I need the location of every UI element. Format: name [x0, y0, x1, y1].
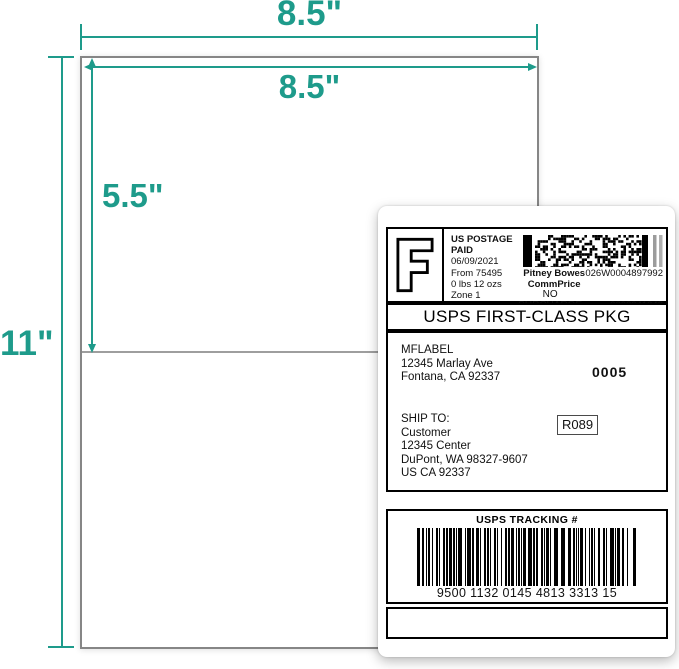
letter-f-outline-icon	[396, 237, 434, 293]
postage-zone: Zone 1	[451, 290, 521, 301]
product-diagram: 8.5" 11" 8.5" 5.5" US POSTAGE PAID 06/09…	[0, 0, 679, 669]
tracking-barcode	[417, 528, 638, 586]
sheet-width-dimension-label: 8.5"	[81, 0, 538, 31]
recipient-name: Customer	[401, 427, 528, 441]
sheet-height-tick-top	[48, 56, 74, 58]
sheet-width-dimension-line	[81, 36, 538, 38]
label-width-dimension-label: 8.5"	[81, 70, 538, 103]
sender-street: 12345 Marlay Ave	[401, 358, 500, 372]
recipient-city: DuPont, WA 98327-9607	[401, 454, 528, 468]
ship-to-heading: SHIP TO:	[401, 413, 528, 427]
sheet-width-tick-right	[536, 24, 538, 50]
label-height-arrow-up-icon	[88, 58, 96, 67]
label-height-arrow-down-icon	[88, 344, 96, 353]
tracking-number: 9500 1132 0145 4813 3313 15	[388, 586, 666, 600]
meter-carrier: Pitney Bowes	[523, 269, 585, 280]
sender-address: MFLABEL 12345 Marlay Ave Fontana, CA 923…	[401, 344, 500, 385]
meter-number: 026W0004897992	[585, 269, 663, 280]
postage-weight: 0 lbs 12 ozs	[451, 279, 521, 290]
empty-section	[386, 607, 668, 639]
label-height-dimension-label: 5.5"	[102, 179, 164, 212]
postage-date: 06/09/2021	[451, 256, 521, 267]
postage-line1: US POSTAGE	[451, 234, 521, 245]
postage-section: US POSTAGE PAID 06/09/2021 From 75495 0 …	[386, 227, 668, 303]
tracking-heading: USPS TRACKING #	[388, 514, 666, 526]
shipping-label-card: US POSTAGE PAID 06/09/2021 From 75495 0 …	[378, 206, 675, 657]
recipient-address: SHIP TO: Customer 12345 Center DuPont, W…	[401, 413, 528, 481]
meter-cell: Pitney Bowes CommPrice NO SURCHARGE 026W…	[521, 229, 667, 301]
recipient-country: US CA 92337	[401, 467, 528, 481]
service-banner: USPS FIRST-CLASS PKG	[386, 303, 668, 331]
postage-indicia-letter	[388, 229, 444, 301]
postage-info: US POSTAGE PAID 06/09/2021 From 75495 0 …	[444, 229, 521, 301]
sheet-height-dimension-label: 11"	[0, 326, 54, 361]
sender-name: MFLABEL	[401, 344, 500, 358]
sheet-height-tick-bottom	[48, 646, 74, 648]
address-section: MFLABEL 12345 Marlay Ave Fontana, CA 923…	[386, 331, 668, 492]
tracking-section: USPS TRACKING # 9500 1132 0145 4813 3313…	[386, 509, 668, 604]
label-height-dimension-line	[91, 65, 93, 346]
postage-line2: PAID	[451, 245, 521, 256]
batch-number: 0005	[592, 364, 627, 380]
route-code-badge: R089	[557, 415, 598, 435]
sheet-height-dimension-line	[61, 57, 63, 647]
sender-city: Fontana, CA 92337	[401, 371, 500, 385]
recipient-street: 12345 Center	[401, 440, 528, 454]
sheet-width-tick-left	[80, 24, 82, 50]
postage-matrix-barcode	[523, 235, 663, 267]
postage-origin: From 75495	[451, 268, 521, 279]
